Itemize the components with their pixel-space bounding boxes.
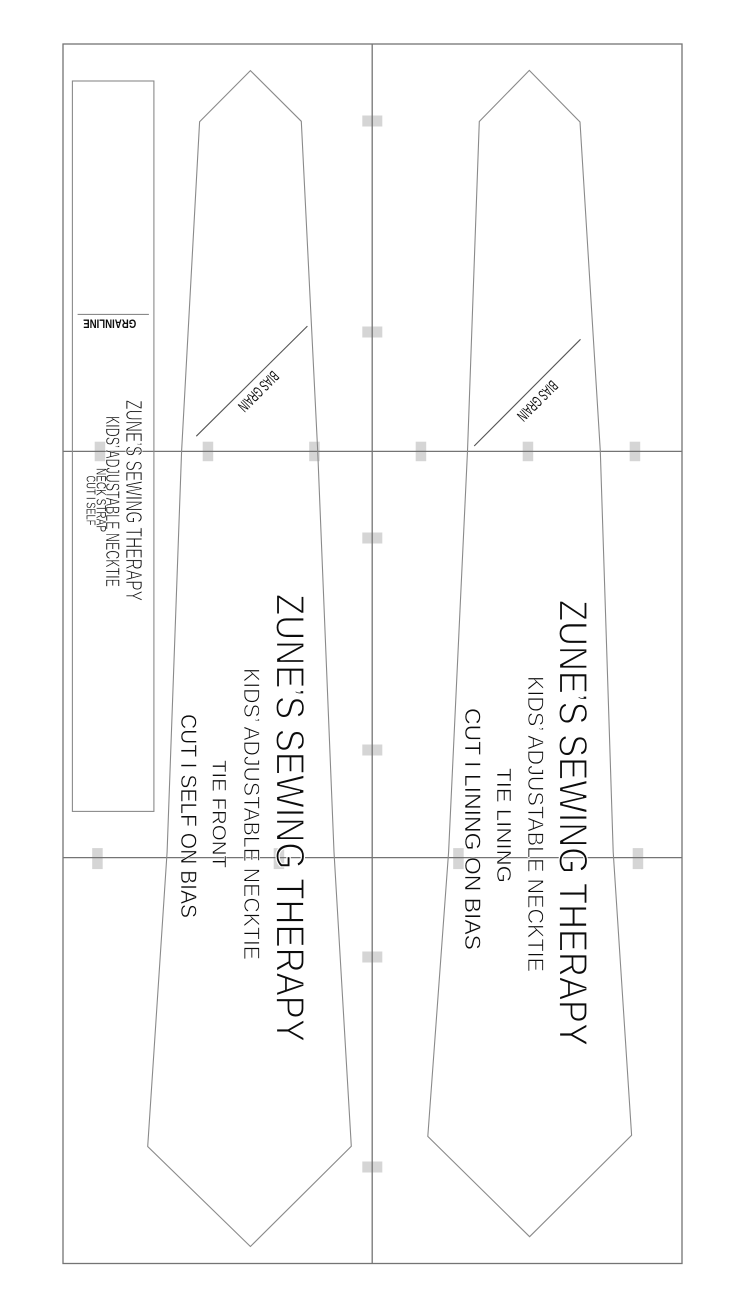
svg-text:KIDS’ ADJUSTABLE NECKTIE: KIDS’ ADJUSTABLE NECKTIE: [239, 668, 264, 960]
svg-text:CUT I SELF ON BIAS: CUT I SELF ON BIAS: [176, 714, 201, 918]
svg-text:CUT I LINING ON BIAS: CUT I LINING ON BIAS: [460, 708, 485, 950]
svg-text:TIE LINING: TIE LINING: [492, 768, 515, 883]
svg-text:GRAINLINE: GRAINLINE: [83, 316, 136, 328]
svg-text:TIE FRONT: TIE FRONT: [208, 760, 229, 868]
svg-text:CUT I SELF: CUT I SELF: [83, 476, 98, 526]
svg-text:KIDS’ ADJUSTABLE NECKTIE: KIDS’ ADJUSTABLE NECKTIE: [523, 676, 548, 972]
svg-text:ZUNE’S SEWING THERAPY: ZUNE’S SEWING THERAPY: [268, 594, 312, 1042]
svg-text:ZUNE’S SEWING THERAPY: ZUNE’S SEWING THERAPY: [551, 600, 595, 1046]
svg-text:ZUNE’S SEWING THERAPY: ZUNE’S SEWING THERAPY: [121, 400, 147, 601]
